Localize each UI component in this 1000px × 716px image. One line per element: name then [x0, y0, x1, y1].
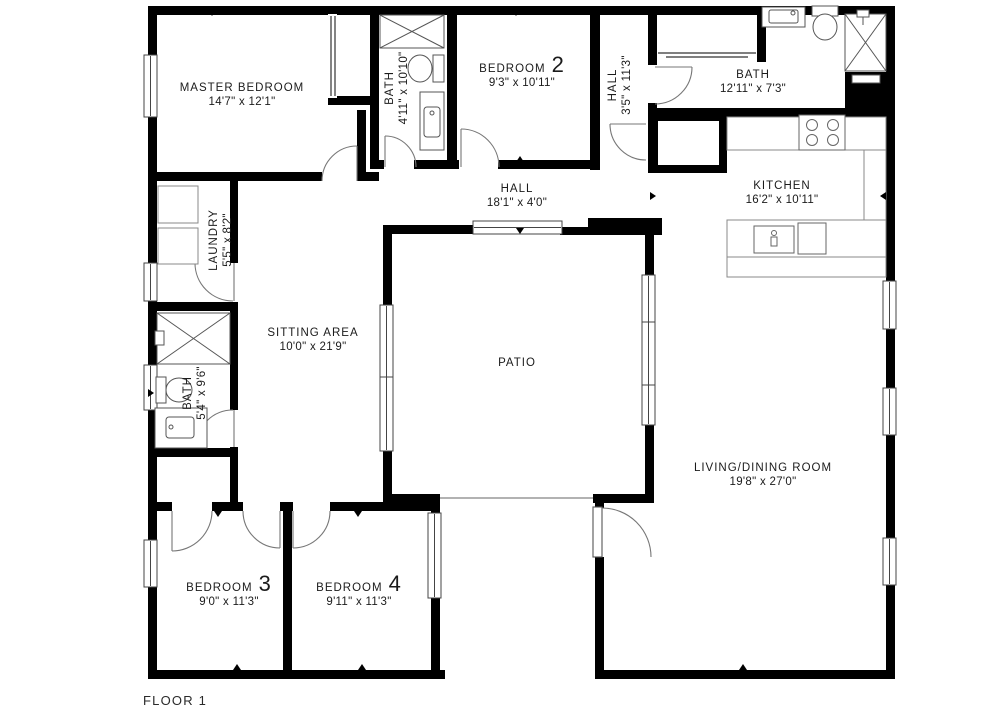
- room-number: 3: [259, 577, 272, 591]
- room-name: HALL: [487, 182, 547, 196]
- room-bath-top: BATH 4'11" x 10'10": [383, 52, 411, 125]
- room-master-bedroom: MASTER BEDROOM 14'7" x 12'1": [180, 81, 305, 109]
- room-dims: 4'11" x 10'10": [397, 52, 411, 125]
- vanity-right-icon: [762, 7, 805, 27]
- room-bedroom-4: BEDROOM4 9'11" x 11'3": [316, 577, 402, 609]
- room-number: 2: [552, 58, 565, 72]
- floor-plan: MASTER BEDROOM 14'7" x 12'1" BATH 4'11" …: [0, 0, 1000, 716]
- room-living-dining: LIVING/DINING ROOM 19'8" x 27'0": [694, 461, 832, 489]
- room-laundry: LAUNDRY 5'5" x 8'2": [207, 209, 235, 271]
- shower-top-icon: [380, 15, 444, 48]
- room-dims: 14'7" x 12'1": [180, 95, 305, 109]
- room-name: BEDROOM4: [316, 577, 402, 595]
- room-name: HALL: [606, 55, 620, 114]
- room-hall-vertical: HALL 3'5" x 11'3": [606, 55, 634, 114]
- room-dims: 5'4" x 9'6": [195, 366, 209, 420]
- room-bedroom-3: BEDROOM3 9'0" x 11'3": [186, 577, 272, 609]
- floor-label: FLOOR 1: [143, 693, 207, 708]
- room-number: 4: [389, 577, 402, 591]
- room-dims: 18'1" x 4'0": [487, 196, 547, 210]
- room-dims: 3'5" x 11'3": [620, 55, 634, 114]
- room-patio: PATIO: [498, 356, 536, 370]
- room-dims: 9'11" x 11'3": [316, 595, 402, 609]
- room-bath-right: BATH 12'11" x 7'3": [720, 68, 786, 96]
- vanity-top-icon: [420, 92, 444, 150]
- room-dims: 9'0" x 11'3": [186, 595, 272, 609]
- room-hall-horizontal: HALL 18'1" x 4'0": [487, 182, 547, 210]
- room-name: BEDROOM3: [186, 577, 272, 595]
- room-name: BEDROOM2: [479, 58, 565, 76]
- island-sink-icon: [754, 223, 826, 254]
- room-kitchen: KITCHEN 16'2" x 10'11": [746, 179, 819, 207]
- room-sitting-area: SITTING AREA 10'0" x 21'9": [267, 326, 358, 354]
- room-name: BATH: [720, 68, 786, 82]
- room-dims: 12'11" x 7'3": [720, 82, 786, 96]
- room-name: SITTING AREA: [267, 326, 358, 340]
- room-dims: 10'0" x 21'9": [267, 340, 358, 354]
- room-name: KITCHEN: [746, 179, 819, 193]
- room-name: PATIO: [498, 356, 536, 370]
- room-name: LIVING/DINING ROOM: [694, 461, 832, 475]
- toilet-right-icon: [812, 6, 838, 40]
- room-name: BATH: [383, 52, 397, 125]
- stove-icon: [799, 115, 845, 150]
- room-name: MASTER BEDROOM: [180, 81, 305, 95]
- room-name: BATH: [181, 366, 195, 420]
- washer-dryer-icon: [158, 186, 198, 264]
- room-dims: 9'3" x 10'11": [479, 76, 565, 90]
- room-dims: 16'2" x 10'11": [746, 193, 819, 207]
- room-name: LAUNDRY: [207, 209, 221, 271]
- room-dims: 5'5" x 8'2": [221, 209, 235, 271]
- room-bedroom-2: BEDROOM2 9'3" x 10'11": [479, 58, 565, 90]
- room-bath-left: BATH 5'4" x 9'6": [181, 366, 209, 420]
- toilet-top-icon: [408, 55, 444, 82]
- room-dims: 19'8" x 27'0": [694, 475, 832, 489]
- shower-left-icon: [155, 313, 230, 364]
